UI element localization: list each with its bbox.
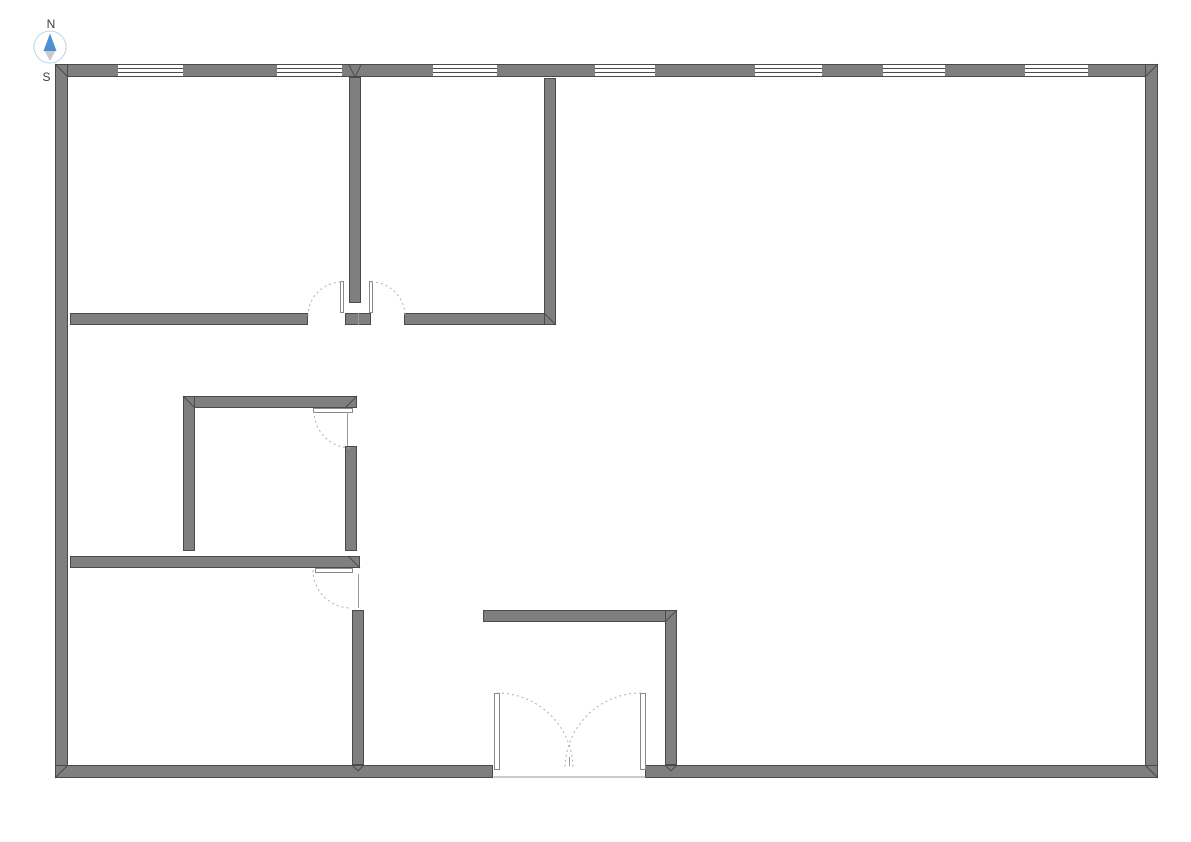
floorplan-svg: N S [0,0,1191,842]
door-swing-arc [371,282,405,316]
window[interactable] [118,64,183,78]
wall-joints-layer [55,64,1158,778]
door-swing-arc [497,693,573,769]
floorplan-canvas[interactable]: N S [0,0,1191,842]
window[interactable] [433,64,497,78]
window[interactable] [755,64,822,78]
door-leaf-lower-room-door-leaf[interactable] [316,569,353,573]
wall-interior-lower-room-east[interactable] [353,611,364,765]
walls-layer [56,65,1158,778]
wall-interior-small-room-west[interactable] [184,397,195,551]
wall-interior-hall-east[interactable] [405,314,556,325]
wall-interior-lower-room-north[interactable] [71,557,360,568]
door-swing-arc [314,411,351,448]
compass-south-label: S [42,70,50,84]
window[interactable] [1025,64,1088,78]
compass-north-label: N [47,17,56,31]
window[interactable] [277,64,342,78]
wall-exterior-right[interactable] [1146,65,1158,778]
wall-exterior-left[interactable] [56,65,68,778]
wall-exterior-bottom-west[interactable] [56,766,493,778]
wall-interior-entry-north[interactable] [484,611,677,622]
window[interactable] [595,64,655,78]
door-leaf-double-interior-right-leaf[interactable] [370,282,373,313]
door-swing-arc [565,693,641,769]
door-leaf-double-interior-left-leaf[interactable] [341,282,344,313]
window[interactable] [883,64,945,78]
wall-exterior-bottom-east[interactable] [646,766,1158,778]
door-swing-arc [313,570,351,608]
door-leaf-small-room-door-leaf[interactable] [314,409,353,413]
wall-interior-entry-east[interactable] [666,611,677,765]
wall-interior-small-room-east[interactable] [346,447,357,551]
door-leaf-entry-door-left-leaf[interactable] [495,694,500,770]
wall-interior-top-middle-room-east[interactable] [545,79,556,325]
wall-interior-small-room-north[interactable] [184,397,357,408]
door-swing-arc [308,282,342,316]
wall-interior-hall-west[interactable] [71,314,308,325]
wall-interior-divider-top-rooms[interactable] [350,78,361,303]
door-leaf-entry-door-right-leaf[interactable] [641,694,646,770]
